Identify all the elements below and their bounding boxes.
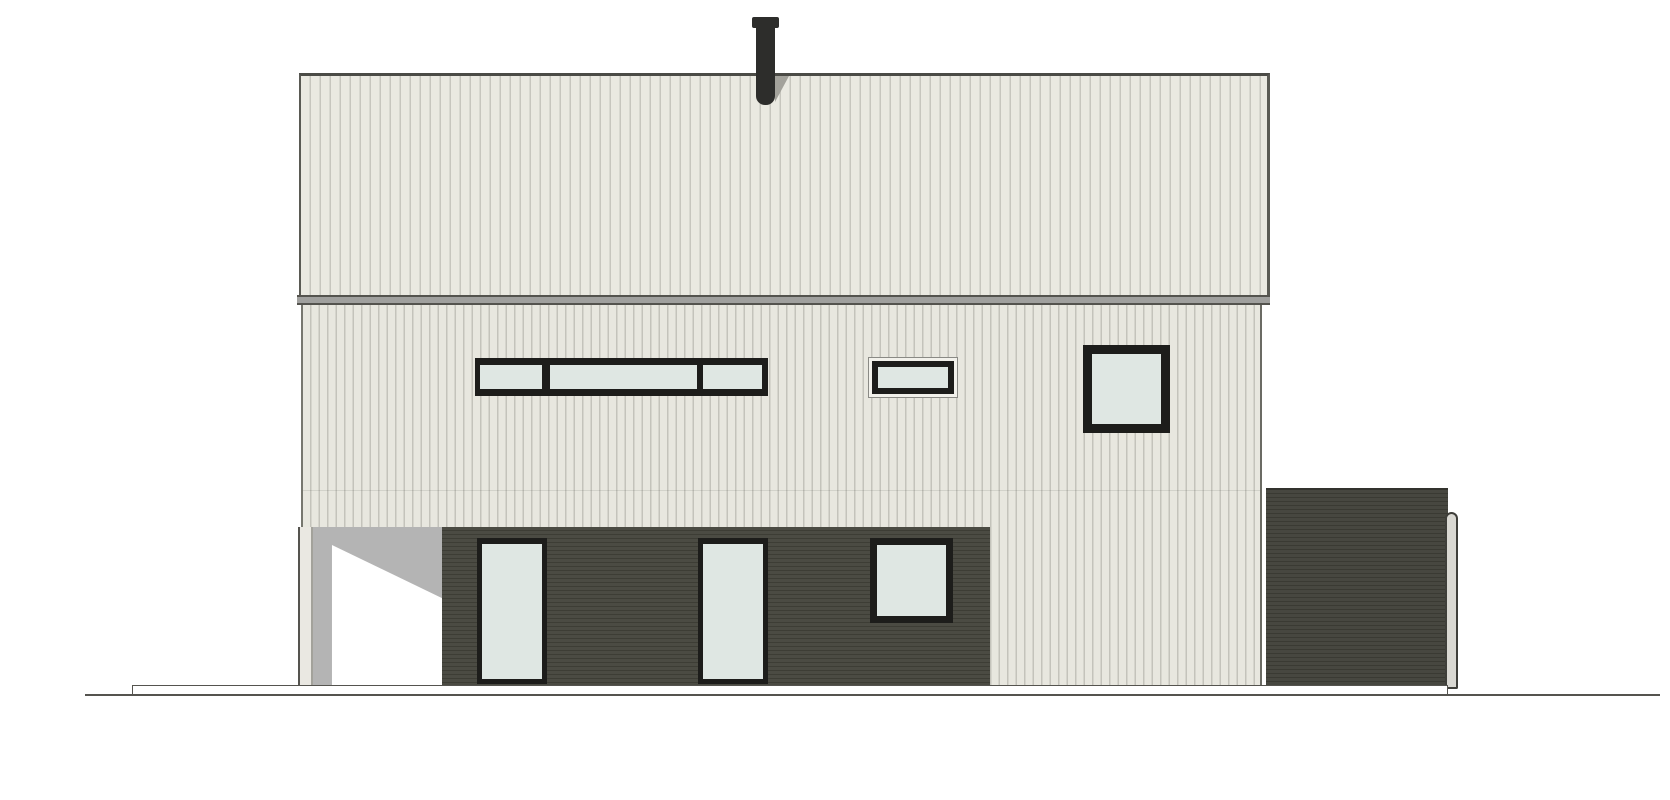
- porch-pillar: [298, 527, 313, 686]
- chimney-cap: [752, 17, 779, 28]
- porch-recess: [313, 527, 442, 686]
- square-window: [1083, 345, 1170, 433]
- annex-block: [1266, 488, 1448, 685]
- glass-door-right-pane: [703, 544, 763, 679]
- glass-door-left-pane: [482, 544, 542, 679]
- wall-seam-line: [303, 490, 1260, 491]
- porch-opening: [313, 527, 442, 686]
- chimney: [756, 26, 775, 105]
- glass-door-right: [698, 538, 768, 684]
- ribbon-window: [475, 358, 768, 396]
- elevation-drawing: [0, 0, 1670, 800]
- ribbon-window-pane-right: [703, 365, 762, 389]
- square-window-pane: [1092, 354, 1161, 424]
- annex-downpipe: [1445, 512, 1458, 689]
- ribbon-window-pane-left: [480, 365, 542, 389]
- roof-panel: [299, 73, 1270, 295]
- transom-window-pane: [878, 367, 948, 388]
- lower-window-pane: [877, 545, 946, 616]
- transom-window: [868, 357, 958, 398]
- ground-line: [85, 694, 1660, 696]
- ribbon-window-pane-center: [550, 365, 697, 389]
- glass-door-left: [477, 538, 547, 684]
- lower-window: [870, 538, 953, 623]
- gutter-band: [297, 295, 1270, 305]
